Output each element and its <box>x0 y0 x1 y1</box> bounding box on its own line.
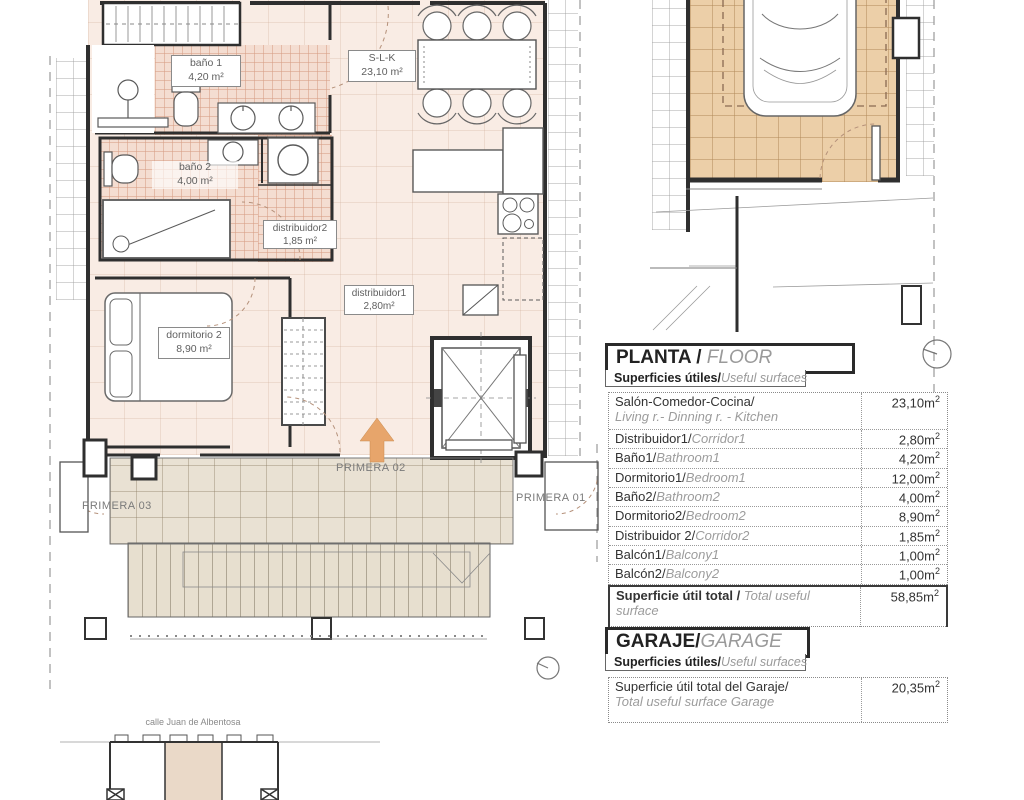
garage-table-subtitle: Superficies útiles/Useful surfaces <box>605 654 806 671</box>
room-area: 8,90 m² <box>176 343 212 357</box>
room-area: 1,85 m² <box>283 235 317 248</box>
room-label-distribuidor2: distribuidor2 1,85 m² <box>263 220 337 249</box>
table-row: Baño2/Bathroom2 4,00m2 <box>609 488 947 507</box>
room-label-bano2: baño 2 4,00 m² <box>152 161 238 189</box>
table-row: Baño1/Bathroom1 4,20m2 <box>609 449 947 468</box>
room-name: baño 2 <box>179 161 211 175</box>
room-name: baño 1 <box>190 57 222 71</box>
subtitle-es: Superficies útiles/ <box>614 371 721 385</box>
table-row: Superficie útil total del Garaje/Total u… <box>609 678 947 722</box>
room-label-slk: S-L-K 23,10 m² <box>348 50 416 82</box>
garage-surfaces-table: Superficie útil total del Garaje/Total u… <box>608 677 948 723</box>
garage-floor-tiles <box>690 0 898 182</box>
left-balcony-tiles <box>56 58 86 300</box>
table-row: Distribuidor1/Corridor1 2,80m2 <box>609 430 947 449</box>
street-label: calle Juan de Albentosa <box>133 717 253 727</box>
table-row: Dormitorio1/Bedroom1 12,00m2 <box>609 469 947 488</box>
title-en: GARAGE <box>700 631 781 652</box>
terrace-tiles <box>110 458 513 544</box>
table-row: Salón-Comedor-Cocina/Living r.- Dinning … <box>609 393 947 430</box>
room-area: 4,20 m² <box>188 71 224 85</box>
title-es: GARAJE/ <box>616 631 700 652</box>
garage-ramp <box>653 198 933 330</box>
subtitle-en: Useful surfaces <box>721 371 807 385</box>
room-area: 4,00 m² <box>177 175 213 189</box>
neighbour-strip-tiles <box>548 0 578 456</box>
zone-label-primera03: PRIMERA 03 <box>82 500 152 512</box>
floor-plan-sheet: baño 1 4,20 m² S-L-K 23,10 m² baño 2 4,0… <box>0 0 1024 800</box>
table-row: Balcón2/Balcony2 1,00m2 <box>609 565 947 584</box>
table-row: Balcón1/Balcony1 1,00m2 <box>609 546 947 565</box>
room-name: distribuidor1 <box>352 287 406 300</box>
room-label-distribuidor1: distribuidor1 2,80m² <box>344 285 414 315</box>
bathroom2-tiles <box>100 138 262 260</box>
room-label-dormitorio2: dormitorio 2 8,90 m² <box>158 327 230 359</box>
title-es: PLANTA / <box>616 347 707 368</box>
floor-table-subtitle: Superficies útiles/Useful surfaces <box>605 370 806 387</box>
title-en: FLOOR <box>707 347 772 368</box>
table-total-row: Superficie útil total / Total useful sur… <box>608 585 948 627</box>
room-area: 23,10 m² <box>361 66 402 80</box>
room-name: dormitorio 2 <box>166 329 221 343</box>
room-name: distribuidor2 <box>273 222 327 235</box>
subtitle-es: Superficies útiles/ <box>614 655 721 669</box>
garage-left-tiles <box>652 0 686 230</box>
room-area: 2,80m² <box>363 300 394 313</box>
room-label-bano1: baño 1 4,20 m² <box>171 55 241 87</box>
subtitle-en: Useful surfaces <box>721 655 807 669</box>
floor-surfaces-table: Salón-Comedor-Cocina/Living r.- Dinning … <box>608 392 948 627</box>
zone-label-primera01: PRIMERA 01 <box>516 492 586 504</box>
zone-label-primera02: PRIMERA 02 <box>336 462 406 474</box>
table-row: Dormitorio2/Bedroom2 8,90m2 <box>609 507 947 526</box>
site-plan-unit-highlight <box>165 742 222 800</box>
garage-right-tiles <box>906 0 934 176</box>
table-row: Distribuidor 2/Corridor2 1,85m2 <box>609 527 947 546</box>
lower-roof <box>128 543 490 617</box>
room-name: S-L-K <box>369 52 396 66</box>
